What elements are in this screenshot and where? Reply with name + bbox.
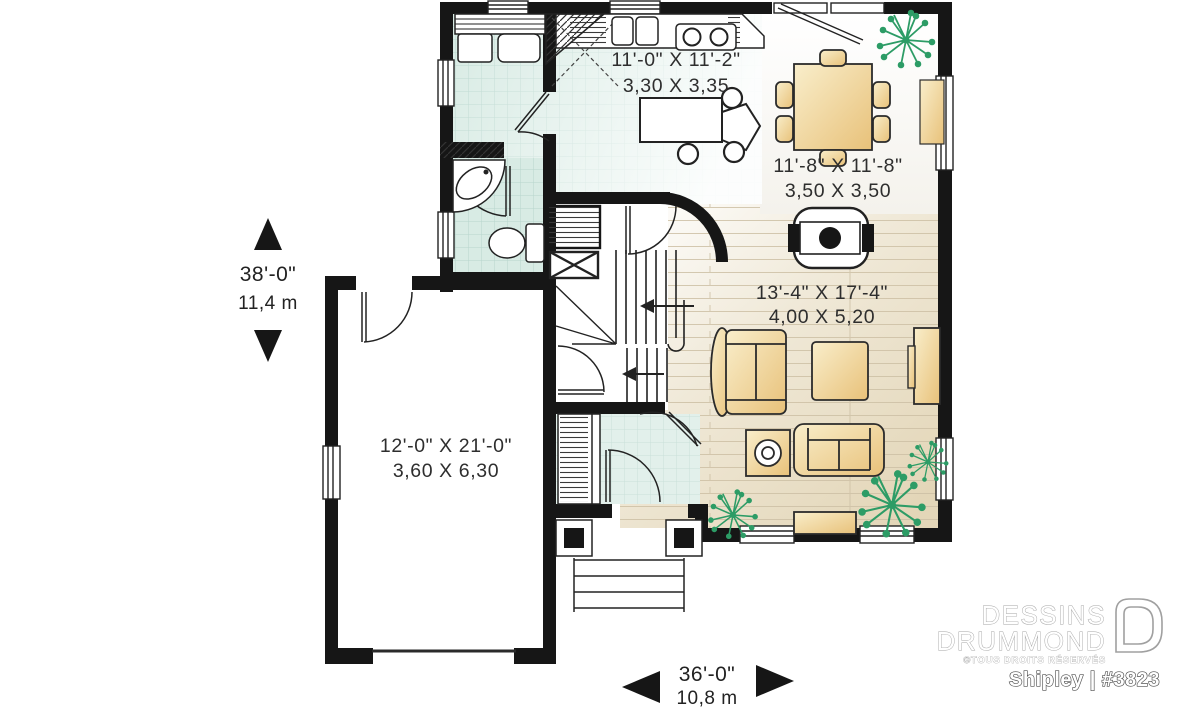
dining-dims-imperial: 11'-8" X 11'-8" [773, 155, 902, 177]
wall-bath-top-hatch [440, 142, 504, 158]
arrow-right-icon [756, 665, 794, 697]
porch [556, 520, 702, 612]
dryer [498, 34, 540, 62]
brand-line2: DRUMMOND [937, 626, 1106, 656]
ottoman [812, 342, 868, 400]
dining-table [794, 64, 872, 150]
window-bath-left [438, 212, 454, 258]
dining-chair [820, 50, 846, 66]
width-imperial: 36'-0" [679, 663, 736, 686]
depth-dimension-marker: 38'-0" 11,4 m [238, 218, 298, 362]
porch-column [564, 528, 584, 548]
living-dims-imperial: 13'-4" X 17'-4" [756, 282, 888, 304]
floor-plan-drawing: 11'-0" X 11'-2" 3,30 X 3,35 11'-8" X 11'… [0, 0, 1200, 711]
shaft-box [550, 252, 598, 278]
porch-steps [574, 560, 684, 608]
arrow-left-icon [622, 671, 660, 703]
wall-garage-bottom-right [514, 648, 556, 664]
dining-chair [873, 116, 890, 142]
depth-metric: 11,4 m [238, 293, 298, 314]
brand-rights: ©TOUS DROITS RÉSERVÉS [963, 655, 1106, 666]
arrow-up-icon [254, 218, 282, 250]
console-bench [794, 512, 856, 534]
branding-block: DESSINS DRUMMOND ©TOUS DROITS RÉSERVÉS S… [937, 599, 1162, 691]
closet-hanging-hatch [560, 416, 588, 502]
window-living-bottom-1 [740, 526, 794, 543]
basement-stairs [548, 206, 600, 248]
width-dimension-marker: 36'-0" 10,8 m [622, 663, 794, 709]
dining-chair [776, 82, 793, 108]
toilet [489, 224, 544, 262]
window-laundry-top [488, 1, 528, 14]
wall-garage-right [543, 290, 556, 664]
living-dims-metric: 4,00 X 5,20 [769, 306, 875, 328]
cooktop [676, 24, 736, 50]
dining-dims-metric: 3,50 X 3,50 [785, 180, 891, 202]
garage-exterior-door [362, 292, 412, 342]
garage-dims-metric: 3,60 X 6,30 [393, 460, 499, 482]
kitchen-dims-imperial: 11'-0" X 11'-2" [611, 49, 740, 71]
porch-step-sides [574, 558, 684, 612]
wood-stove [788, 208, 874, 268]
wall-stairhall-top [543, 192, 670, 204]
chair-icon [724, 142, 744, 162]
washer [458, 34, 492, 62]
drummond-d-logo-icon [1116, 599, 1162, 652]
loveseat [711, 328, 786, 416]
wall-garage-bottom-left [325, 648, 373, 664]
side-table-lamp [746, 430, 790, 476]
porch-column [674, 528, 694, 548]
plan-id-label: Shipley | #3823 [1009, 669, 1160, 691]
faucet-icon [484, 170, 489, 175]
floor-plan-page: 11'-0" X 11'-2" 3,30 X 3,35 11'-8" X 11'… [0, 0, 1200, 711]
dining-chair [776, 116, 793, 142]
window-laundry-left [438, 60, 454, 106]
window-kitchen-sink [610, 1, 660, 14]
dining-rug [920, 80, 944, 144]
kitchen-dims-metric: 3,30 X 3,35 [623, 75, 729, 97]
depth-imperial: 38'-0" [240, 263, 297, 286]
width-metric: 10,8 m [676, 688, 737, 709]
garage-door-opening [356, 274, 412, 292]
window-garage-left [323, 446, 340, 499]
dining-chair [873, 82, 890, 108]
laundry-room [455, 14, 545, 62]
stove-flue-icon [819, 227, 841, 249]
sofa [794, 424, 884, 476]
wall-bath-bottom [440, 272, 556, 290]
garage-dims-imperial: 12'-0" X 21'-0" [380, 435, 512, 457]
arrow-down-icon [254, 330, 282, 362]
wall-entry-bottom-left [556, 504, 612, 518]
chair-icon [678, 144, 698, 164]
